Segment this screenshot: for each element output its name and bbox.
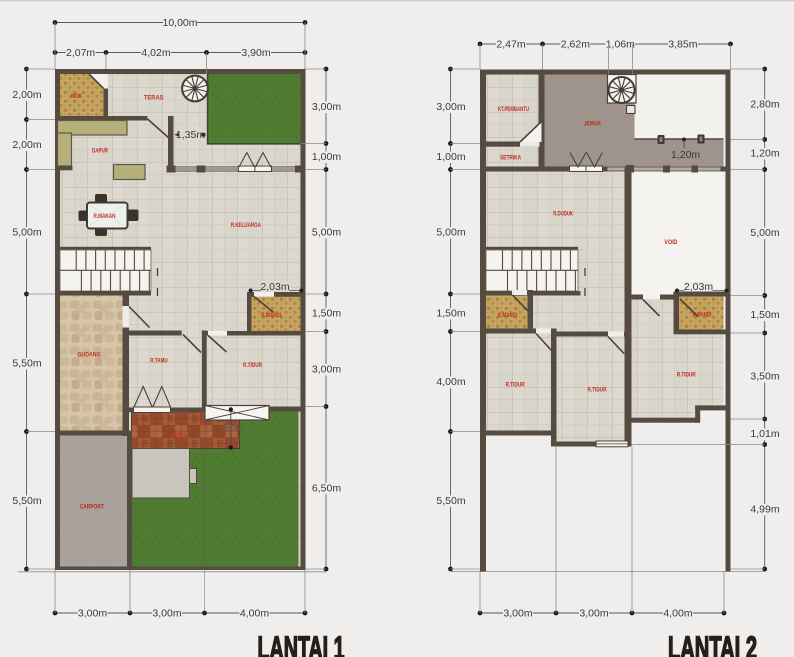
svg-text:TERAS: TERAS: [172, 433, 187, 439]
svg-text:GUDANG: GUDANG: [78, 353, 101, 359]
svg-text:5,50m: 5,50m: [12, 358, 41, 370]
svg-text:LANTAI 2: LANTAI 2: [668, 630, 757, 657]
svg-text:1,00m: 1,00m: [312, 151, 341, 163]
svg-text:1,20m: 1,20m: [671, 149, 700, 161]
svg-text:1,50m: 1,50m: [436, 308, 465, 320]
svg-text:LANTAI 1: LANTAI 1: [258, 630, 345, 657]
svg-text:1,01m: 1,01m: [750, 428, 779, 440]
svg-text:2,47m: 2,47m: [496, 39, 525, 51]
svg-text:3,85m: 3,85m: [668, 39, 697, 51]
svg-text:4,00m: 4,00m: [436, 376, 465, 388]
svg-text:4,00m: 4,00m: [240, 608, 269, 620]
svg-text:TERAS: TERAS: [144, 95, 164, 101]
svg-text:R.KELUARGA: R.KELUARGA: [231, 223, 261, 229]
svg-text:5,00m: 5,00m: [436, 227, 465, 239]
svg-text:5,00m: 5,00m: [312, 227, 341, 239]
svg-text:1,20m: 1,20m: [750, 148, 779, 160]
svg-text:3,00m: 3,00m: [579, 608, 608, 620]
svg-text:K.MANDI: K.MANDI: [693, 312, 712, 318]
svg-text:K.MANDI: K.MANDI: [498, 313, 517, 319]
svg-text:5,00m: 5,00m: [12, 227, 41, 239]
svg-text:2,00m: 2,00m: [12, 89, 41, 101]
svg-text:3,90m: 3,90m: [241, 47, 270, 59]
svg-text:R.TIDUR: R.TIDUR: [677, 373, 697, 379]
svg-text:2,80m: 2,80m: [750, 99, 779, 111]
svg-text:KT.PEMBANTU: KT.PEMBANTU: [498, 107, 529, 113]
svg-text:1,50m: 1,50m: [750, 309, 779, 321]
svg-text:VOID: VOID: [664, 240, 678, 246]
svg-text:R.TAMU: R.TAMU: [150, 358, 168, 364]
svg-text:3,00m: 3,00m: [312, 364, 341, 376]
svg-text:3,50m: 3,50m: [750, 371, 779, 383]
svg-text:JEMUR: JEMUR: [584, 121, 602, 127]
svg-text:R.TIDUR: R.TIDUR: [243, 363, 263, 369]
svg-text:2,62m: 2,62m: [561, 39, 590, 51]
svg-text:2,07m: 2,07m: [66, 47, 95, 59]
svg-text:5,50m: 5,50m: [436, 495, 465, 507]
svg-text:10,00m: 10,00m: [162, 17, 197, 29]
svg-text:3,00m: 3,00m: [78, 608, 107, 620]
svg-text:R.DUDUK: R.DUDUK: [553, 211, 573, 217]
svg-text:MCK: MCK: [71, 94, 83, 100]
svg-text:4,00m: 4,00m: [663, 608, 692, 620]
svg-text:R.TIDUR: R.TIDUR: [588, 387, 608, 393]
svg-text:CARPORT: CARPORT: [80, 505, 104, 511]
svg-text:5,50m: 5,50m: [12, 495, 41, 507]
svg-text:2,03m: 2,03m: [260, 281, 289, 293]
svg-text:3,00m: 3,00m: [312, 101, 341, 113]
svg-text:2,00m: 2,00m: [12, 139, 41, 151]
svg-text:5,00m: 5,00m: [750, 227, 779, 239]
svg-text:DAPUR: DAPUR: [92, 149, 108, 155]
svg-text:2,03m: 2,03m: [684, 281, 713, 293]
svg-text:3,00m: 3,00m: [152, 608, 181, 620]
svg-text:1,06m: 1,06m: [606, 39, 635, 51]
svg-text:3,00m: 3,00m: [503, 608, 532, 620]
svg-text:3,00m: 3,00m: [436, 101, 465, 113]
svg-text:6,50m: 6,50m: [312, 482, 341, 494]
svg-text:4,02m: 4,02m: [141, 47, 170, 59]
svg-text:R.TIDUR: R.TIDUR: [506, 383, 526, 389]
svg-text:1,00m: 1,00m: [436, 151, 465, 163]
svg-text:R.MANDI: R.MANDI: [261, 313, 281, 319]
svg-text:SETRIKA: SETRIKA: [500, 156, 522, 162]
svg-text:1,50m: 1,50m: [215, 422, 244, 434]
svg-text:R.MAKAN: R.MAKAN: [94, 214, 116, 220]
svg-text:4,99m: 4,99m: [750, 504, 779, 516]
svg-text:1,35m: 1,35m: [176, 129, 205, 141]
svg-text:1,50m: 1,50m: [312, 308, 341, 320]
